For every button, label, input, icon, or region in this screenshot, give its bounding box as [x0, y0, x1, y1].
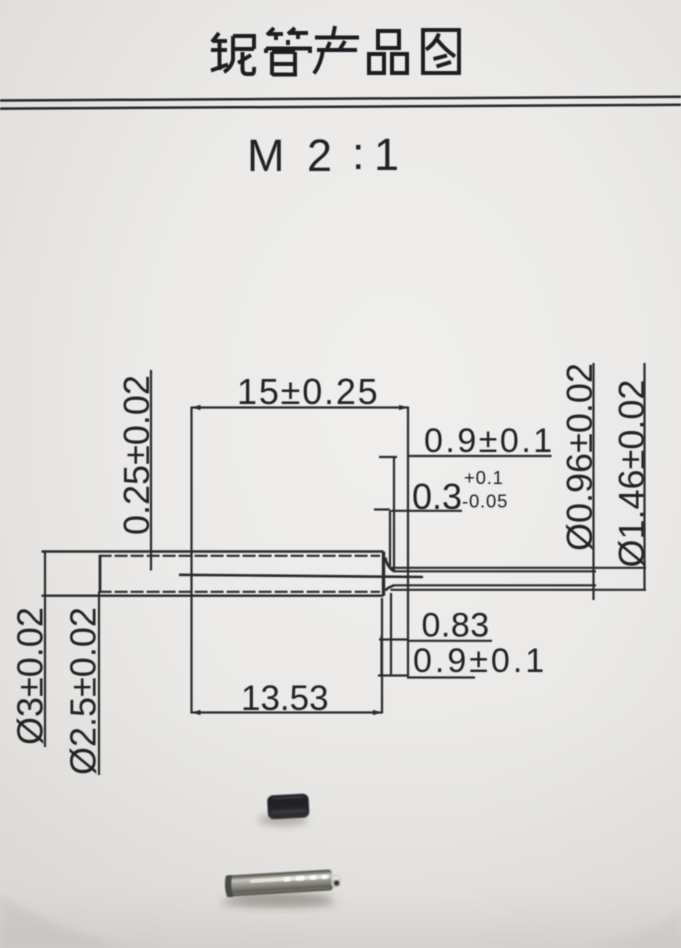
svg-text:M: M	[247, 130, 285, 181]
svg-text:13.53: 13.53	[241, 679, 329, 718]
svg-text::: :	[352, 128, 365, 179]
svg-text:0.3: 0.3	[412, 476, 462, 517]
svg-text:1: 1	[374, 129, 399, 180]
svg-text:0.83: 0.83	[422, 607, 490, 645]
svg-text:Ø2.5±0.02: Ø2.5±0.02	[63, 607, 104, 775]
svg-text:2: 2	[307, 130, 332, 181]
svg-text:Ø0.96±0.02: Ø0.96±0.02	[559, 363, 600, 551]
svg-text:Ø1.46±0.02: Ø1.46±0.02	[611, 380, 652, 568]
svg-text:15±0.25: 15±0.25	[237, 371, 379, 412]
svg-text:+0.1: +0.1	[464, 467, 504, 488]
svg-text:0.9±0.1: 0.9±0.1	[424, 422, 555, 460]
svg-text:-0.05: -0.05	[462, 491, 508, 512]
svg-text:0.9±0.1: 0.9±0.1	[413, 642, 547, 680]
svg-text:Ø3±0.02: Ø3±0.02	[10, 607, 51, 745]
svg-text:0.25±0.02: 0.25±0.02	[116, 375, 157, 535]
